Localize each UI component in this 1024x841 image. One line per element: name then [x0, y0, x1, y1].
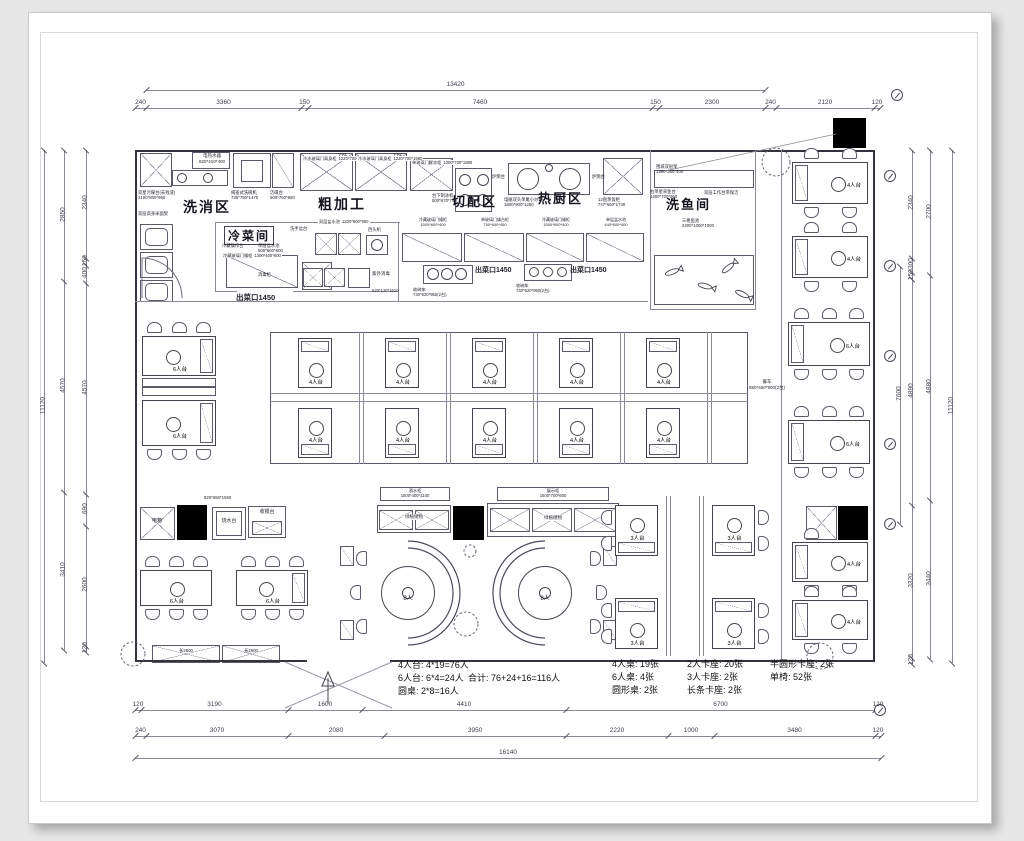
table-count-line: 半圆形卡座: 2张 — [770, 658, 834, 671]
fish-icons — [664, 259, 753, 302]
table-count-line: 6人桌: 4张 — [612, 671, 659, 684]
section-line — [660, 134, 836, 172]
seat-count-line: 圆桌: 2*8=16人 — [398, 685, 469, 698]
door-arc — [142, 258, 182, 298]
table-count-line: 圆形桌: 2张 — [612, 684, 659, 697]
seat-count-line: 4人台: 4*19=76人 — [398, 659, 469, 672]
entrance-paving-cross — [285, 662, 392, 708]
table-count-line: 2人卡座: 20张 — [687, 658, 743, 671]
plan-linework — [0, 0, 1024, 841]
table-count-col1: 4人桌: 19张 6人桌: 4张 圆形桌: 2张 — [612, 658, 659, 697]
table-count-line: 长条卡座: 2张 — [687, 684, 743, 697]
seat-count-total: 合计: 76+24+16=116人 — [468, 672, 560, 685]
table-count-line: 4人桌: 19张 — [612, 658, 659, 671]
seat-count-line: 6人台: 6*4=24人 — [398, 672, 469, 685]
table-count-line: 3人卡座: 2张 — [687, 671, 743, 684]
seat-count-left: 4人台: 4*19=76人 6人台: 6*4=24人 圆桌: 2*8=16人 — [398, 659, 469, 698]
table-count-line: 单椅: 52张 — [770, 671, 834, 684]
floor-plan: 洗消区 冷菜间 粗加工 切配区 热厨区 洗鱼间 4人台: 4*19=76人 6人… — [0, 0, 1024, 841]
plant-icons — [121, 148, 833, 669]
table-count-col3: 半圆形卡座: 2张 单椅: 52张 — [770, 658, 834, 684]
table-count-col2: 2人卡座: 20张 3人卡座: 2张 长条卡座: 2张 — [687, 658, 743, 697]
